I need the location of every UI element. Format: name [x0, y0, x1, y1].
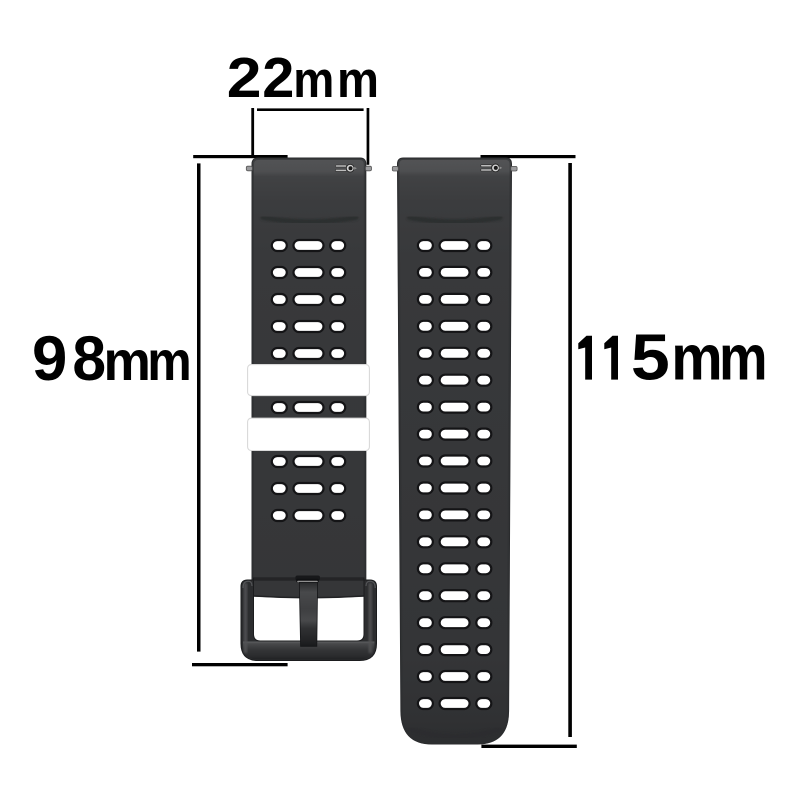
svg-text:m: m	[147, 330, 191, 392]
svg-text:m: m	[337, 52, 379, 108]
svg-text:5: 5	[631, 322, 670, 394]
svg-text:m: m	[671, 322, 722, 393]
svg-text:m: m	[104, 330, 151, 392]
svg-text:m: m	[293, 52, 334, 109]
svg-text:m: m	[719, 321, 768, 393]
svg-text:9: 9	[32, 324, 67, 394]
svg-text:2: 2	[262, 46, 294, 110]
svg-text:2: 2	[227, 46, 262, 110]
svg-text:8: 8	[72, 324, 106, 394]
